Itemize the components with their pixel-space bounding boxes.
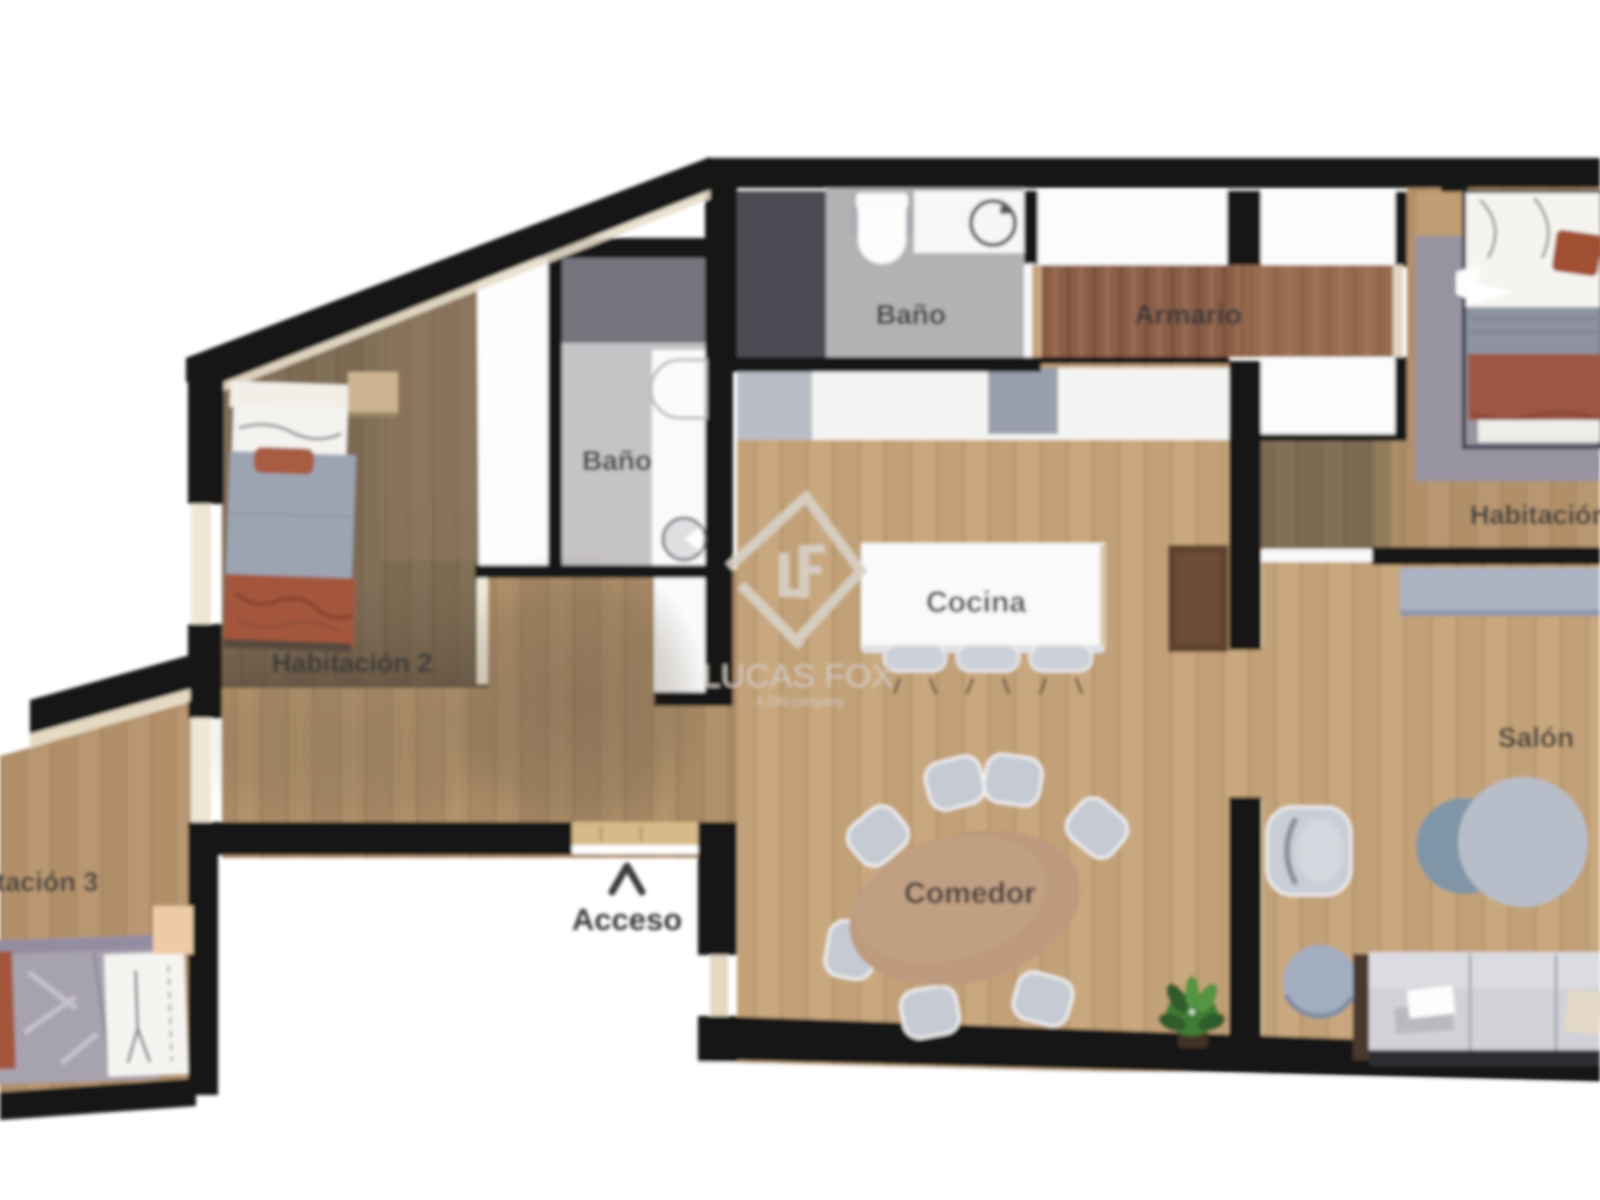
svg-text:Habitación 2: Habitación 2 <box>272 648 433 678</box>
svg-text:Habitación 1: Habitación 1 <box>1470 500 1600 530</box>
svg-text:Baño: Baño <box>876 299 946 330</box>
svg-text:Habitación 3: Habitación 3 <box>0 867 98 897</box>
svg-text:Armario: Armario <box>1134 299 1241 330</box>
svg-text:Salón: Salón <box>1498 722 1574 753</box>
svg-text:Comedor: Comedor <box>904 877 1036 910</box>
svg-text:Baño: Baño <box>582 445 652 476</box>
svg-text:LUCAS FOX: LUCAS FOX <box>702 658 894 694</box>
svg-text:A Dils company: A Dils company <box>756 693 844 709</box>
svg-text:Acceso: Acceso <box>572 902 682 937</box>
svg-text:Cocina: Cocina <box>926 586 1026 619</box>
